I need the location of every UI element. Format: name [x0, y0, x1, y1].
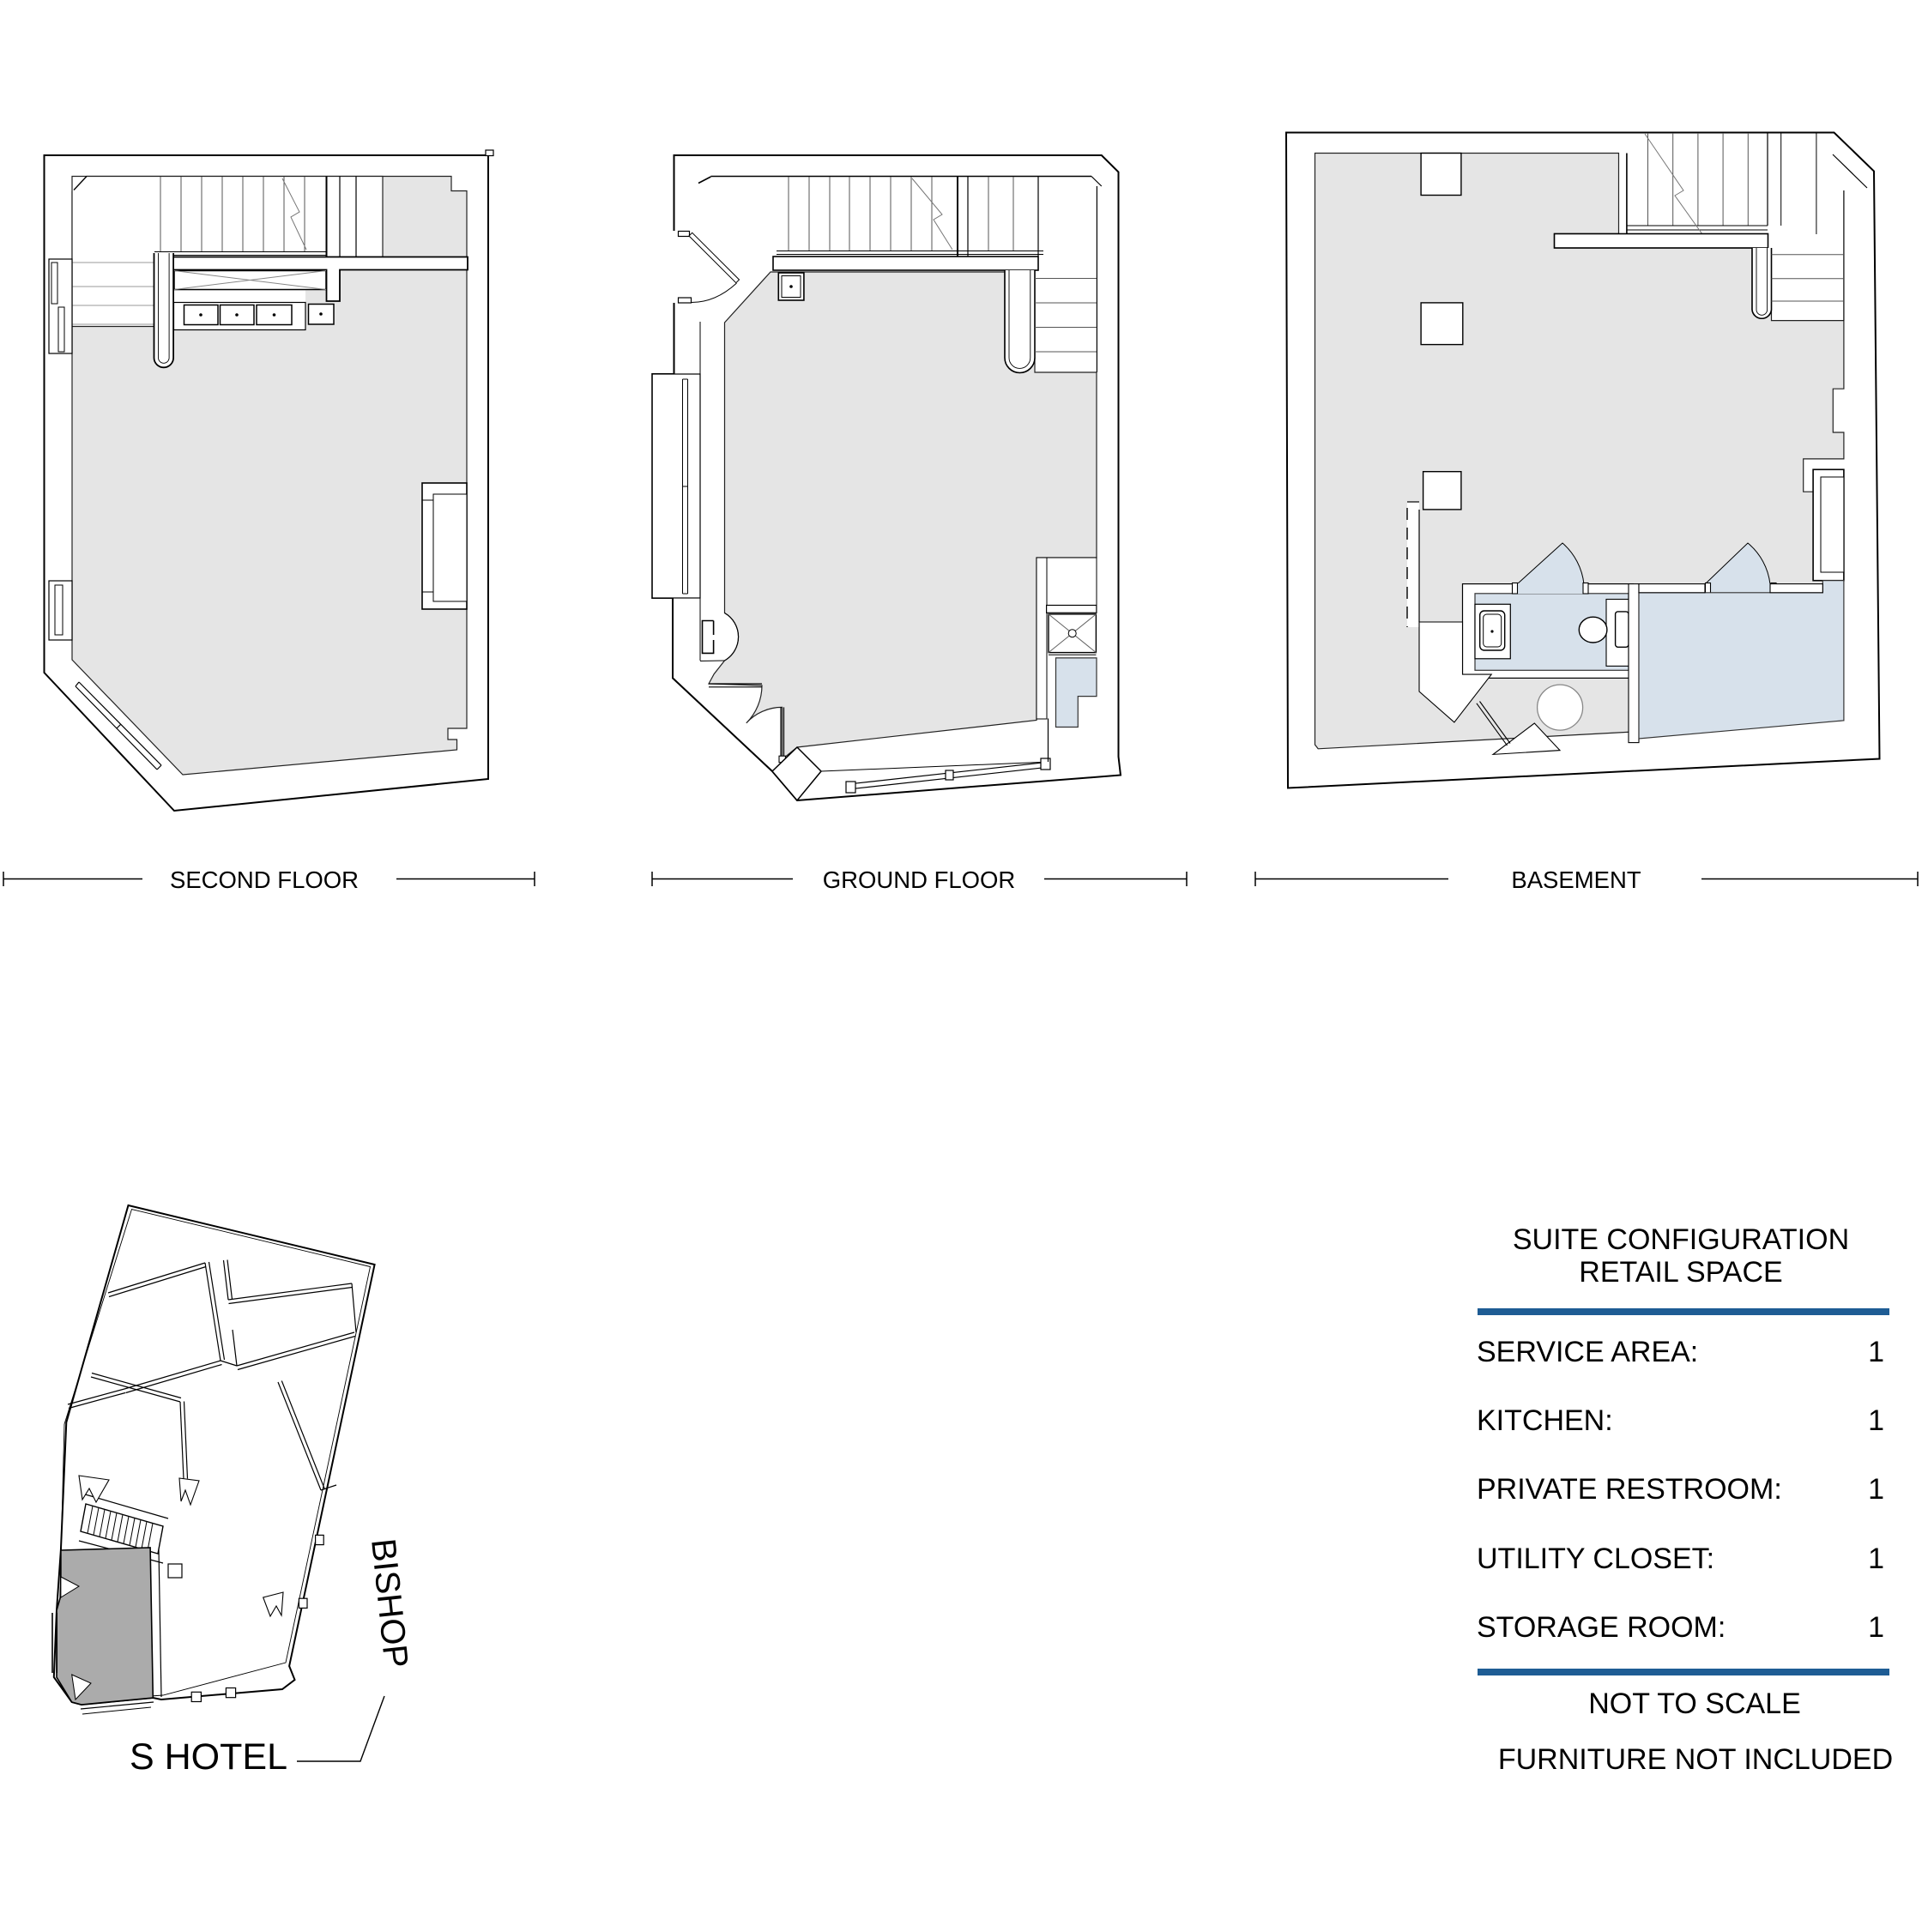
svg-text:GROUND FLOOR: GROUND FLOOR — [823, 866, 1016, 893]
svg-text:BASEMENT: BASEMENT — [1511, 866, 1641, 893]
svg-text:1: 1 — [1868, 1473, 1884, 1506]
svg-text:1: 1 — [1868, 1336, 1884, 1368]
svg-text:SECOND FLOOR: SECOND FLOOR — [170, 866, 359, 893]
svg-text:RETAIL SPACE: RETAIL SPACE — [1579, 1256, 1782, 1289]
svg-text:KITCHEN:: KITCHEN: — [1477, 1404, 1613, 1437]
svg-text:PRIVATE RESTROOM:: PRIVATE RESTROOM: — [1477, 1473, 1782, 1506]
svg-text:1: 1 — [1868, 1611, 1884, 1644]
svg-text:SERVICE AREA:: SERVICE AREA: — [1477, 1336, 1698, 1368]
svg-text:NOT TO SCALE: NOT TO SCALE — [1588, 1687, 1801, 1720]
svg-text:1: 1 — [1868, 1404, 1884, 1437]
svg-text:FURNITURE NOT INCLUDED: FURNITURE NOT INCLUDED — [1498, 1743, 1893, 1776]
svg-text:UTILITY CLOSET:: UTILITY CLOSET: — [1477, 1543, 1714, 1575]
svg-text:SUITE CONFIGURATION: SUITE CONFIGURATION — [1513, 1223, 1849, 1256]
svg-text:BISHOP: BISHOP — [364, 1537, 415, 1669]
svg-text:S HOTEL: S HOTEL — [130, 1736, 287, 1778]
svg-text:1: 1 — [1868, 1543, 1884, 1575]
svg-text:STORAGE ROOM:: STORAGE ROOM: — [1477, 1611, 1726, 1644]
